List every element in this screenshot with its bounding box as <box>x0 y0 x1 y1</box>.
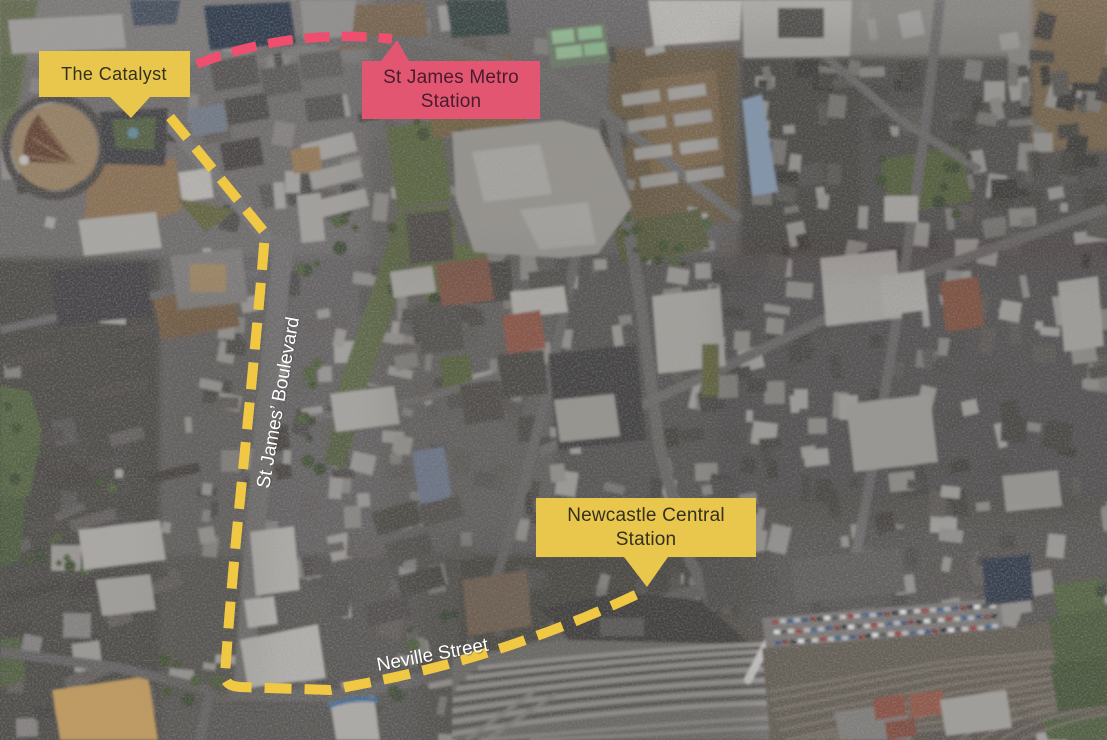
svg-text:Station: Station <box>616 529 677 550</box>
svg-text:Station: Station <box>421 91 482 112</box>
svg-text:Newcastle Central: Newcastle Central <box>567 505 725 526</box>
svg-text:The Catalyst: The Catalyst <box>61 64 167 84</box>
svg-text:St James Metro: St James Metro <box>383 67 519 88</box>
